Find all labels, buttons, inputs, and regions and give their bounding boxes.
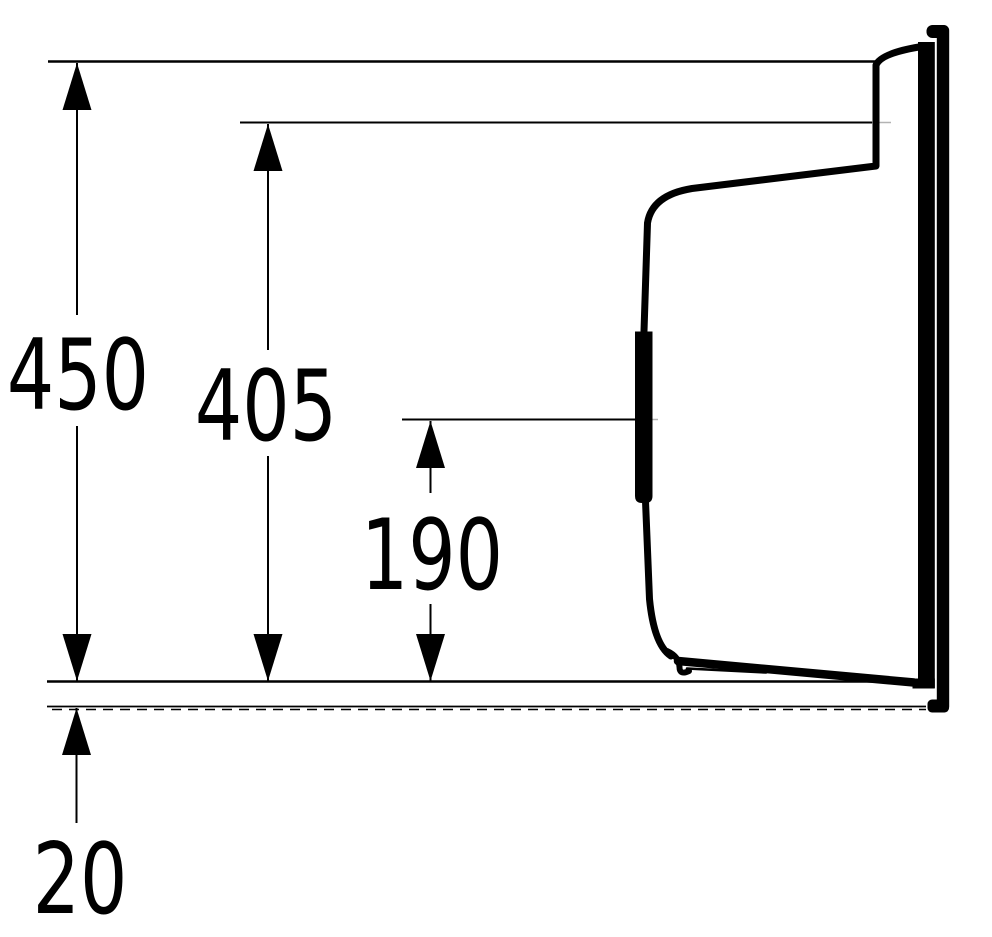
dimension-label-190: 190 <box>361 498 503 613</box>
basin-front-thick-edge <box>635 332 653 504</box>
basin-side-elevation-drawing: 450 405 190 20 <box>0 0 992 937</box>
dimension-label-405: 405 <box>195 349 337 464</box>
wall-foot-step <box>913 679 935 689</box>
wall-section <box>913 25 950 713</box>
dimension-190: 190 <box>361 421 503 681</box>
arrow-up-icon <box>416 421 445 468</box>
arrow-down-icon <box>254 634 283 681</box>
dimension-450: 450 <box>7 63 149 681</box>
wall-bottom-end <box>928 700 950 713</box>
arrow-up-icon <box>62 708 91 755</box>
basin-profile <box>635 47 919 683</box>
wall-top-cap <box>927 25 950 38</box>
dimension-label-450: 450 <box>7 318 149 433</box>
technical-drawing-page: 450 405 190 20 <box>0 0 992 937</box>
arrow-down-icon <box>63 634 92 681</box>
dimension-label-20: 20 <box>33 822 128 937</box>
basin-bottom-slope <box>678 661 914 683</box>
wall-inner-line <box>918 42 935 688</box>
arrow-down-icon <box>416 634 445 681</box>
arrow-up-icon <box>254 124 283 171</box>
wall-outer-line <box>937 25 949 712</box>
dimension-20: 20 <box>33 708 128 937</box>
arrow-up-icon <box>63 63 92 110</box>
basin-front-lower-outline <box>646 501 672 656</box>
basin-rear-and-rim-outline <box>644 47 919 331</box>
dimension-405: 405 <box>195 124 337 681</box>
